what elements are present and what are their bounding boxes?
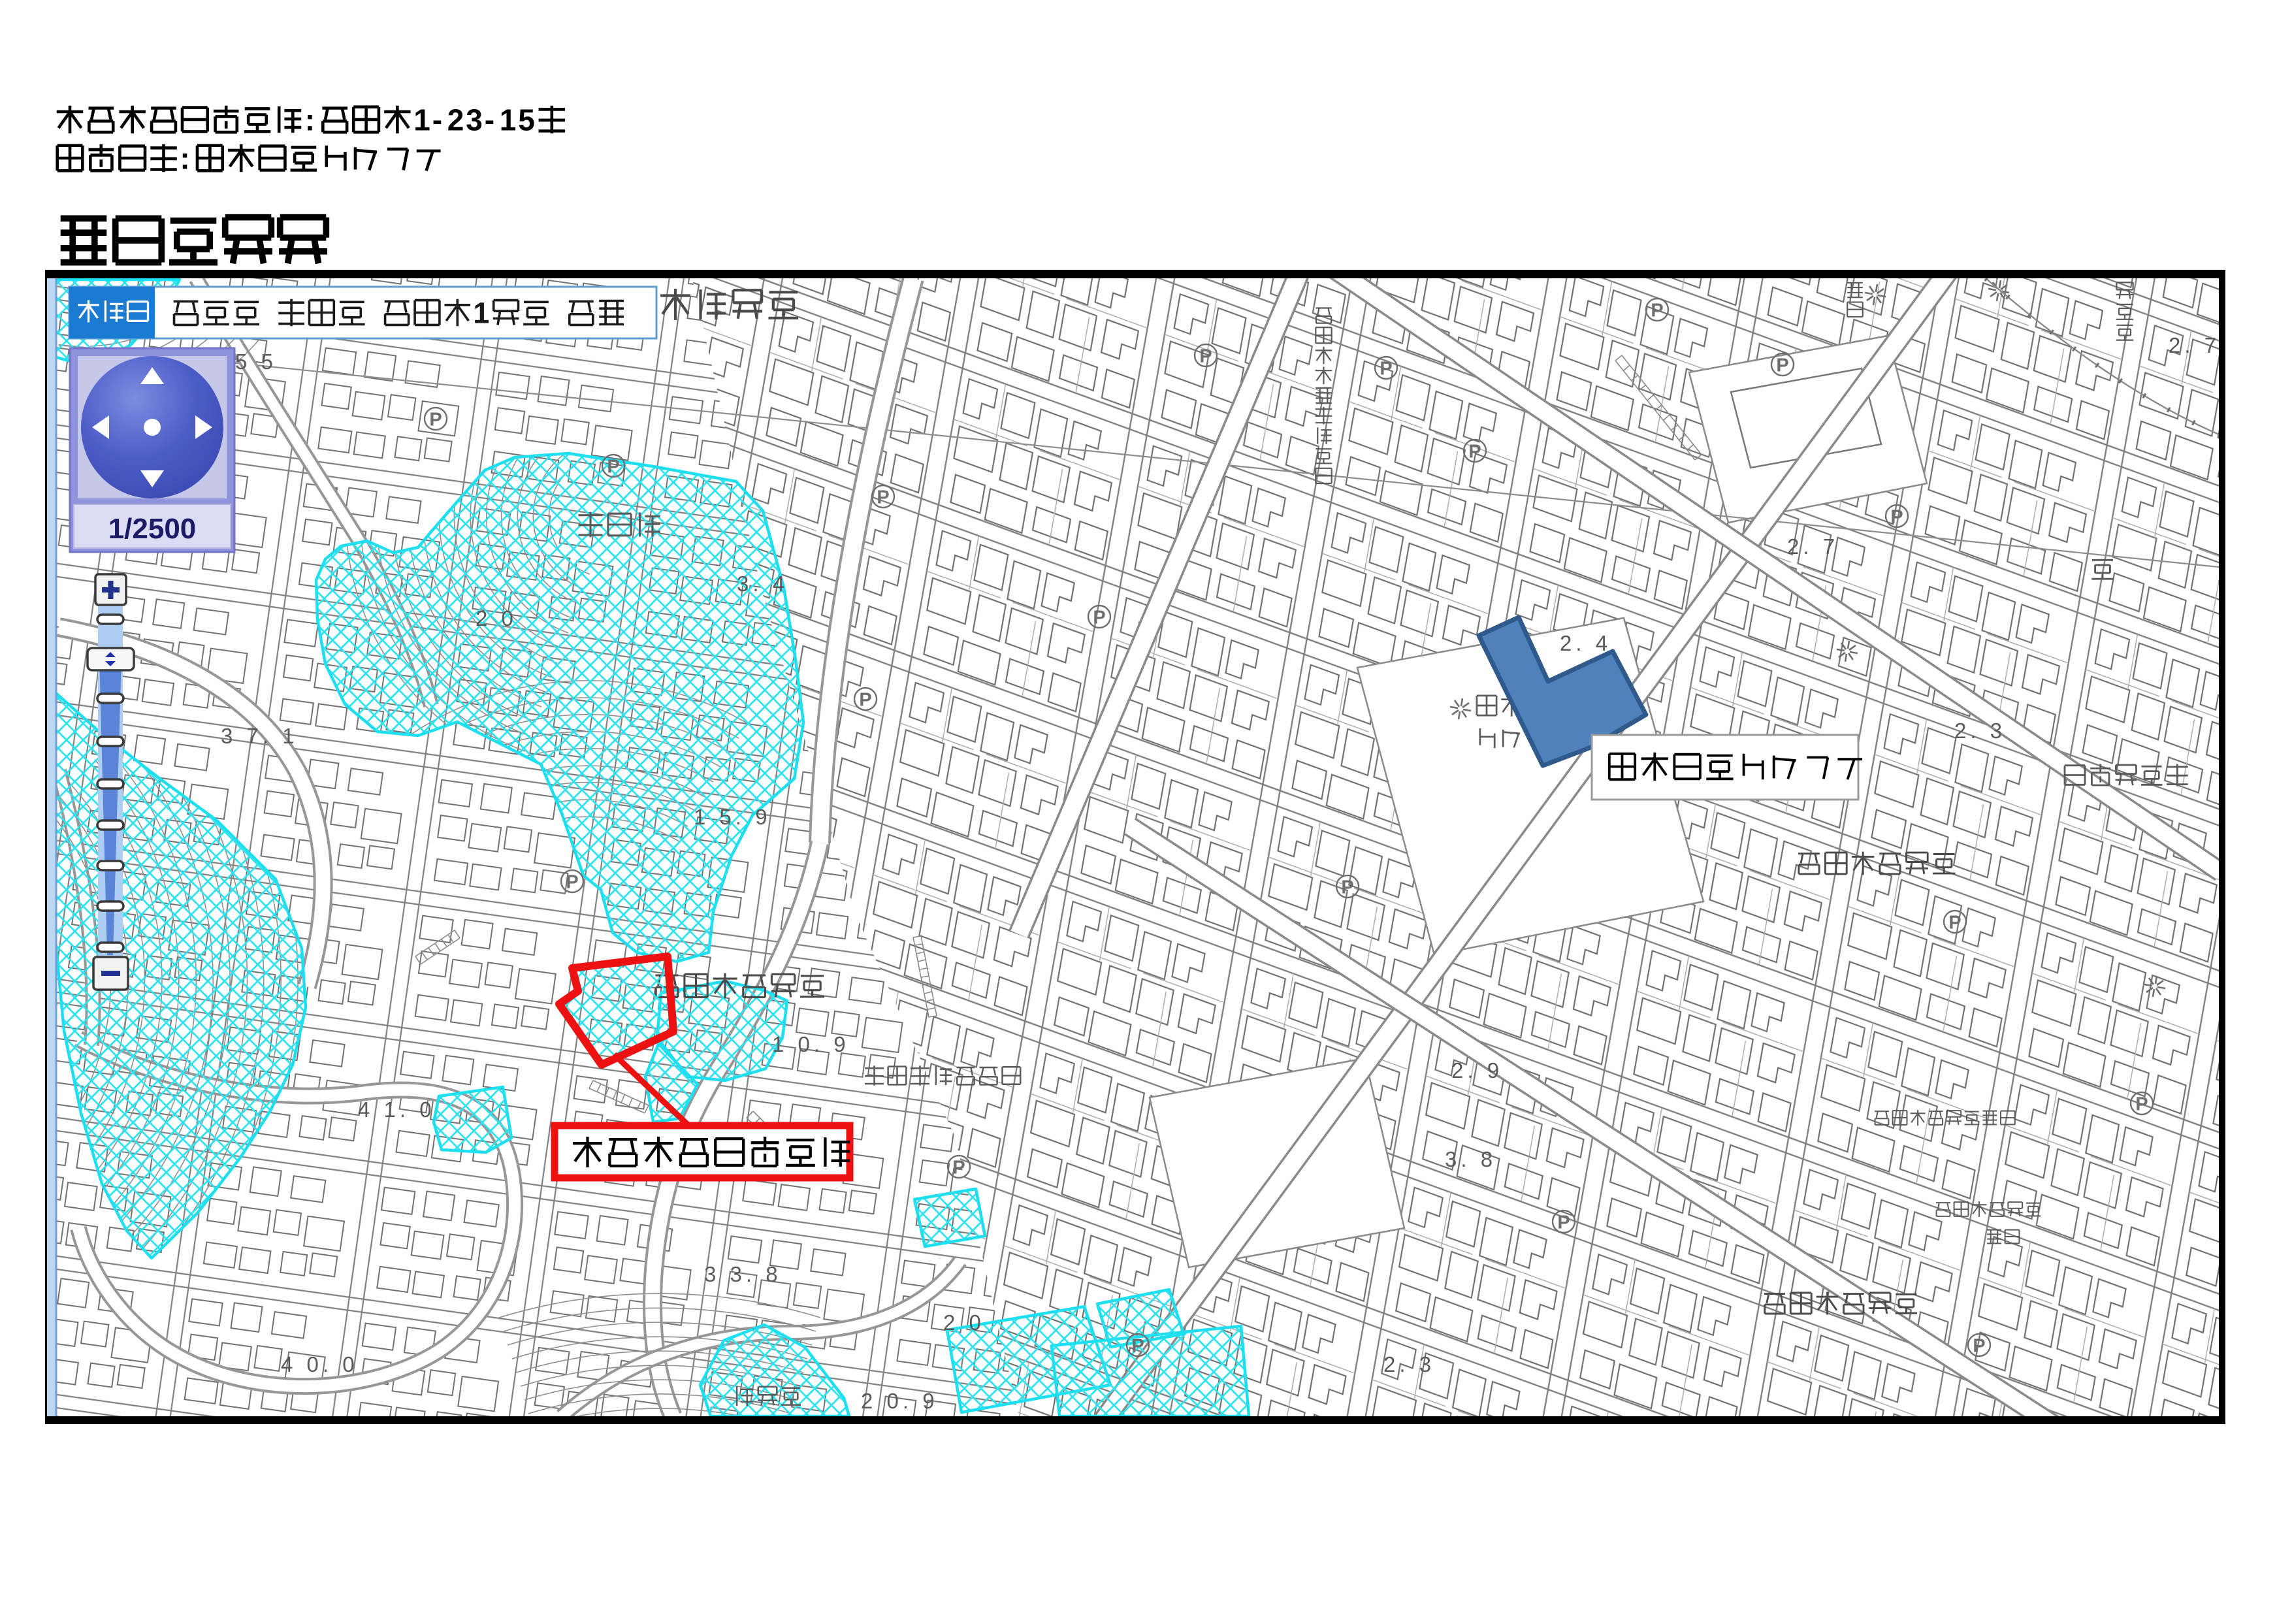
- svg-text:1 0. 9: 1 0. 9: [772, 1032, 850, 1056]
- svg-text:3 7. 1: 3 7. 1: [221, 724, 299, 748]
- svg-text:3 3. 8: 3 3. 8: [704, 1262, 782, 1286]
- svg-text:P: P: [1468, 442, 1481, 463]
- svg-text:P: P: [2135, 1094, 2148, 1115]
- svg-text:P: P: [1973, 1336, 1985, 1357]
- svg-text:5: 5: [518, 103, 535, 137]
- svg-text:P: P: [859, 690, 871, 711]
- svg-text:2 0: 2 0: [943, 1310, 985, 1335]
- svg-text:2 0: 2 0: [476, 606, 517, 630]
- svg-text:-: -: [432, 103, 442, 137]
- svg-text:P: P: [607, 457, 619, 478]
- svg-text:2. 3: 2. 3: [1954, 719, 2006, 743]
- svg-text:P: P: [1557, 1212, 1570, 1233]
- svg-text:2. 7: 2. 7: [1787, 534, 1839, 559]
- svg-text:1/2500: 1/2500: [108, 513, 197, 545]
- svg-text:5 5: 5 5: [235, 349, 277, 374]
- svg-text:2. 3: 2. 3: [1383, 1352, 1435, 1376]
- svg-text:P: P: [429, 410, 442, 430]
- svg-text:4 0. 0: 4 0. 0: [281, 1352, 359, 1376]
- svg-text:P: P: [1093, 608, 1105, 628]
- svg-text:1: 1: [413, 103, 430, 137]
- svg-text:P: P: [1890, 507, 1903, 528]
- svg-text:-: -: [485, 103, 494, 137]
- svg-text:P: P: [1341, 877, 1353, 898]
- svg-text:3: 3: [466, 103, 483, 137]
- svg-text:P: P: [1948, 913, 1961, 934]
- svg-text:P: P: [1651, 300, 1663, 321]
- svg-text:P: P: [877, 487, 889, 508]
- svg-text:2. 9: 2. 9: [1451, 1058, 1503, 1082]
- svg-text:P: P: [1776, 355, 1788, 376]
- svg-text:4 1. 0: 4 1. 0: [358, 1097, 436, 1122]
- svg-text:3. 8: 3. 8: [1445, 1147, 1496, 1171]
- svg-text:3. 4: 3. 4: [737, 572, 788, 596]
- svg-text:2. 4: 2. 4: [1560, 631, 1611, 655]
- svg-text:P: P: [952, 1158, 965, 1178]
- svg-text:2: 2: [447, 103, 464, 137]
- svg-text:P: P: [1199, 346, 1212, 367]
- svg-text:1 5. 9: 1 5. 9: [694, 805, 771, 829]
- svg-text::: :: [180, 142, 189, 176]
- svg-text:2. 7: 2. 7: [2169, 333, 2220, 357]
- svg-text::: :: [305, 103, 315, 137]
- svg-text:1: 1: [500, 103, 517, 137]
- svg-text:P: P: [1131, 1336, 1144, 1357]
- svg-text:P: P: [566, 872, 578, 893]
- svg-text:1: 1: [473, 297, 489, 330]
- svg-text:2 0. 9: 2 0. 9: [861, 1389, 939, 1413]
- svg-text:P: P: [1380, 359, 1392, 380]
